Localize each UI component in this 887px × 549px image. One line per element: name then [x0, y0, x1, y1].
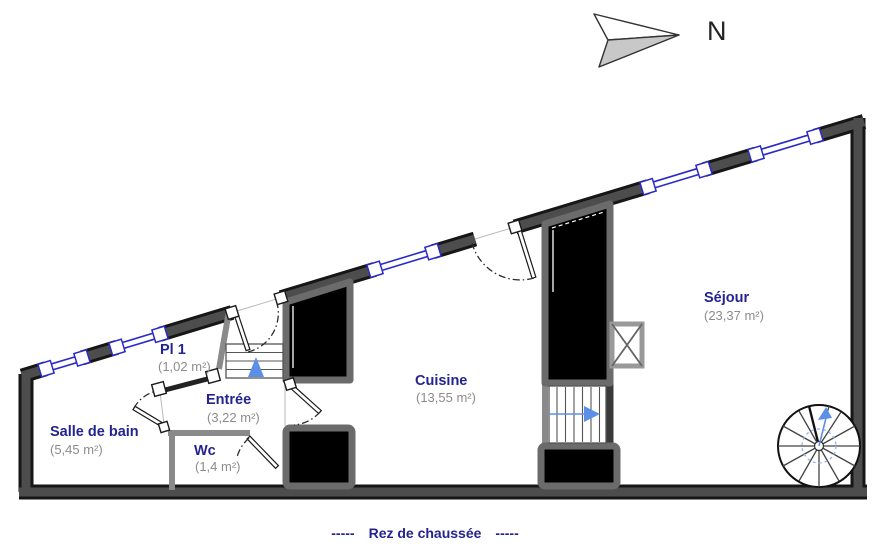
compass-label: N	[707, 16, 727, 46]
floor-plan-drawing: N Salle de bain (5,45 m²) Pl 1 (1,02 m²)…	[0, 0, 887, 549]
room-name-cuisine: Cuisine	[415, 373, 467, 389]
window-posts	[38, 128, 823, 377]
room-name-sejour: Séjour	[704, 290, 749, 306]
room-area-cuisine: (13,55 m²)	[416, 390, 476, 405]
kitchen-bottom-box	[541, 446, 617, 486]
kitchen-shaft	[545, 204, 610, 383]
room-name-pl1: Pl 1	[160, 342, 186, 358]
room-labels: Salle de bain (5,45 m²) Pl 1 (1,02 m²) E…	[50, 290, 764, 474]
north-arrow-icon	[594, 14, 679, 67]
spiral-staircase-icon	[778, 405, 860, 487]
room-name-salle-de-bain: Salle de bain	[50, 424, 139, 440]
floor-plan-page: { "compass": { "label": "N" }, "caption"…	[0, 0, 887, 549]
room-name-entree: Entrée	[206, 392, 251, 408]
windows	[38, 128, 823, 377]
window-5	[755, 133, 816, 157]
entry-shaft	[286, 282, 350, 380]
hall-door	[284, 378, 322, 425]
duct-x-icon	[612, 324, 642, 366]
room-name-wc: Wc	[194, 443, 216, 459]
entrance-door	[225, 291, 288, 352]
kitchen-stairs	[549, 386, 606, 443]
room-area-wc: (1,4 m²)	[195, 459, 241, 474]
window-3	[374, 249, 434, 272]
floor-caption: -----Rez de chaussée-----	[331, 525, 519, 541]
room-area-pl1: (1,02 m²)	[158, 359, 211, 374]
room-area-entree: (3,22 m²)	[207, 410, 260, 425]
window-4	[647, 167, 705, 190]
entry-stairs	[226, 344, 283, 378]
wc-side-box	[286, 428, 352, 486]
room-area-salle-de-bain: (5,45 m²)	[50, 442, 103, 457]
room-area-sejour: (23,37 m²)	[704, 308, 764, 323]
wc-door	[237, 436, 278, 468]
